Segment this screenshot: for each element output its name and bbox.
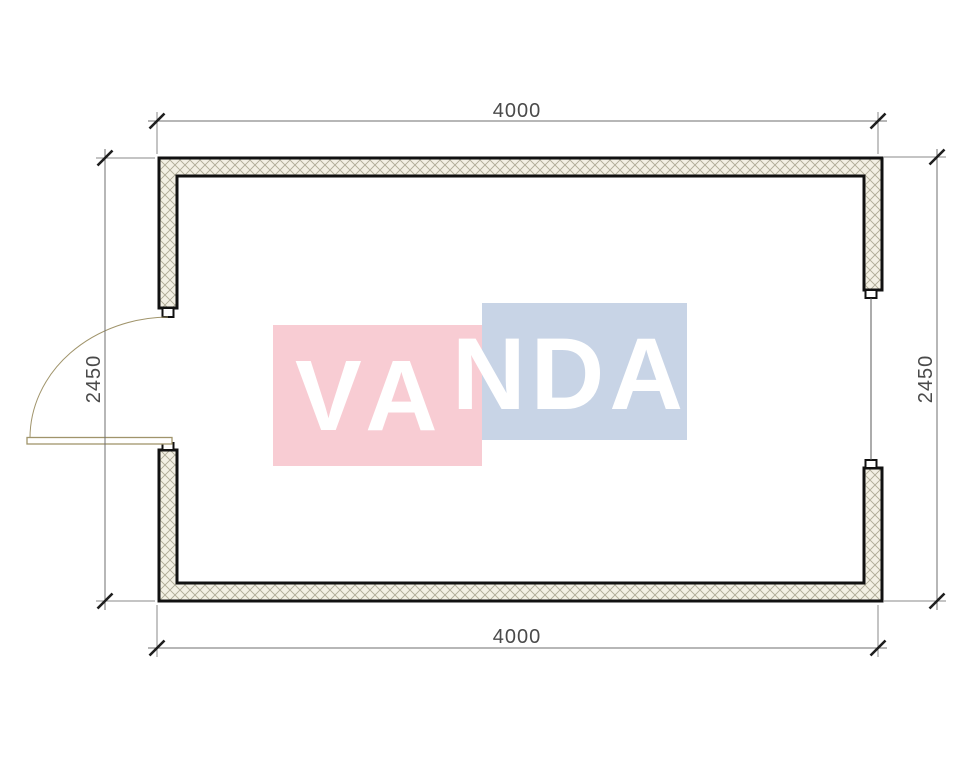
floor-plan-canvas: VA NDA 4000 (0, 0, 960, 768)
wall-upper (159, 158, 882, 308)
dimension-label-left: 2450 (83, 355, 105, 404)
door-jamb-top (163, 308, 174, 317)
dimension-label-top: 4000 (493, 100, 542, 122)
dimension-right: 2450 (884, 149, 946, 610)
door-leaf (27, 438, 172, 445)
window-jamb-top (866, 290, 877, 298)
dimension-bottom: 4000 (148, 605, 887, 657)
floor-plan: VA NDA 4000 (0, 0, 960, 768)
watermark-logo: VA NDA (273, 303, 688, 466)
watermark-text-part2: NDA (452, 317, 688, 431)
watermark-text-part1: VA (295, 340, 449, 452)
dimension-label-right: 2450 (915, 355, 937, 404)
dimension-left: 2450 (83, 149, 155, 610)
dimension-label-bottom: 4000 (493, 626, 542, 648)
window-jamb-bottom (866, 460, 877, 468)
wall-lower (159, 450, 882, 601)
window (866, 290, 877, 468)
dimension-top: 4000 (148, 100, 887, 154)
